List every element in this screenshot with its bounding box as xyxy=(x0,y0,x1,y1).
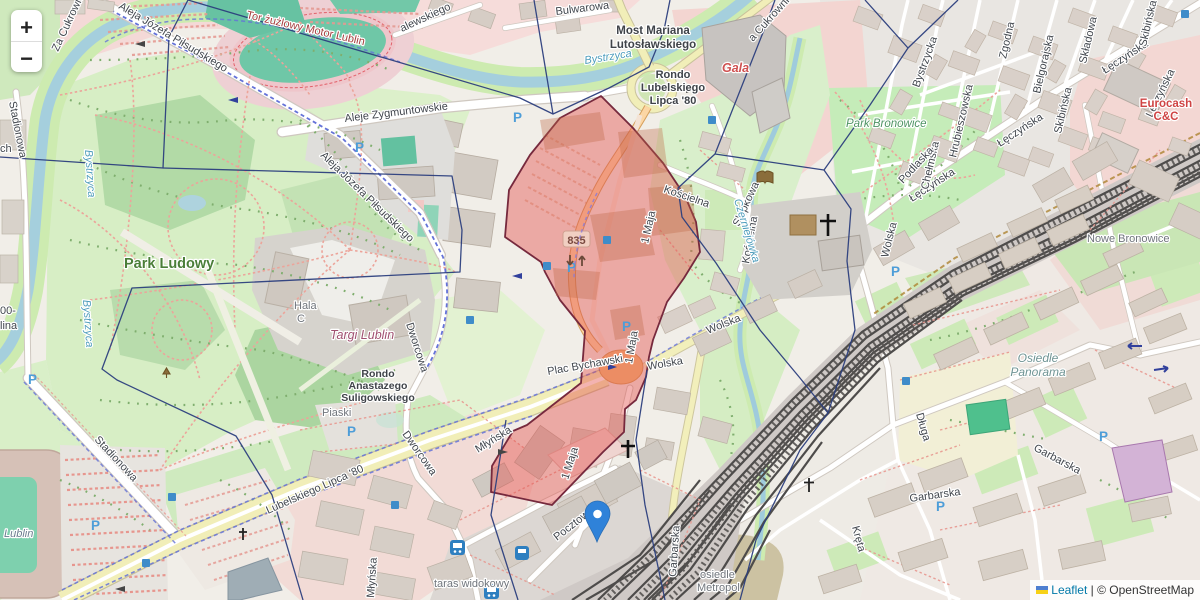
svg-text:lina: lina xyxy=(0,320,18,332)
svg-text:Park Bronowice: Park Bronowice xyxy=(846,118,927,130)
svg-text:Lublin: Lublin xyxy=(4,528,33,540)
svg-text:osiedle: osiedle xyxy=(700,569,735,581)
svg-text:P: P xyxy=(936,499,945,514)
svg-text:Eurocash: Eurocash xyxy=(1140,98,1192,110)
svg-text:P: P xyxy=(891,264,900,279)
svg-text:P: P xyxy=(28,372,37,387)
svg-text:Metropol: Metropol xyxy=(697,582,740,594)
svg-text:Osiedle: Osiedle xyxy=(1018,351,1059,365)
svg-text:P: P xyxy=(347,424,356,439)
svg-text:Hala: Hala xyxy=(294,300,318,312)
svg-text:Lubelskiego: Lubelskiego xyxy=(641,82,705,94)
svg-text:ch: ch xyxy=(0,143,12,155)
svg-text:835: 835 xyxy=(567,235,585,247)
svg-text:P: P xyxy=(355,140,364,155)
svg-text:Piaski: Piaski xyxy=(322,407,351,419)
svg-text:Park Ludowy: Park Ludowy xyxy=(124,256,214,272)
svg-text:C&C: C&C xyxy=(1154,111,1179,123)
svg-text:taras widokowy: taras widokowy xyxy=(434,578,510,590)
svg-text:Rondo: Rondo xyxy=(361,368,394,380)
svg-text:Targi Lublin: Targi Lublin xyxy=(330,328,394,342)
svg-text:Most Mariana: Most Mariana xyxy=(616,25,690,37)
svg-text:Panorama: Panorama xyxy=(1010,365,1066,379)
svg-text:Gala: Gala xyxy=(722,61,749,75)
svg-text:P: P xyxy=(1099,429,1108,444)
svg-text:C: C xyxy=(297,313,305,325)
svg-text:Lipca '80: Lipca '80 xyxy=(650,95,697,107)
svg-text:00-: 00- xyxy=(0,305,16,317)
svg-text:P: P xyxy=(91,518,100,533)
svg-text:Nowe Bronowice: Nowe Bronowice xyxy=(1087,233,1170,245)
svg-text:P: P xyxy=(513,110,522,125)
svg-text:Rondo: Rondo xyxy=(656,69,691,81)
svg-text:Anastazego: Anastazego xyxy=(349,380,408,392)
svg-text:Suligowskiego: Suligowskiego xyxy=(341,392,415,404)
